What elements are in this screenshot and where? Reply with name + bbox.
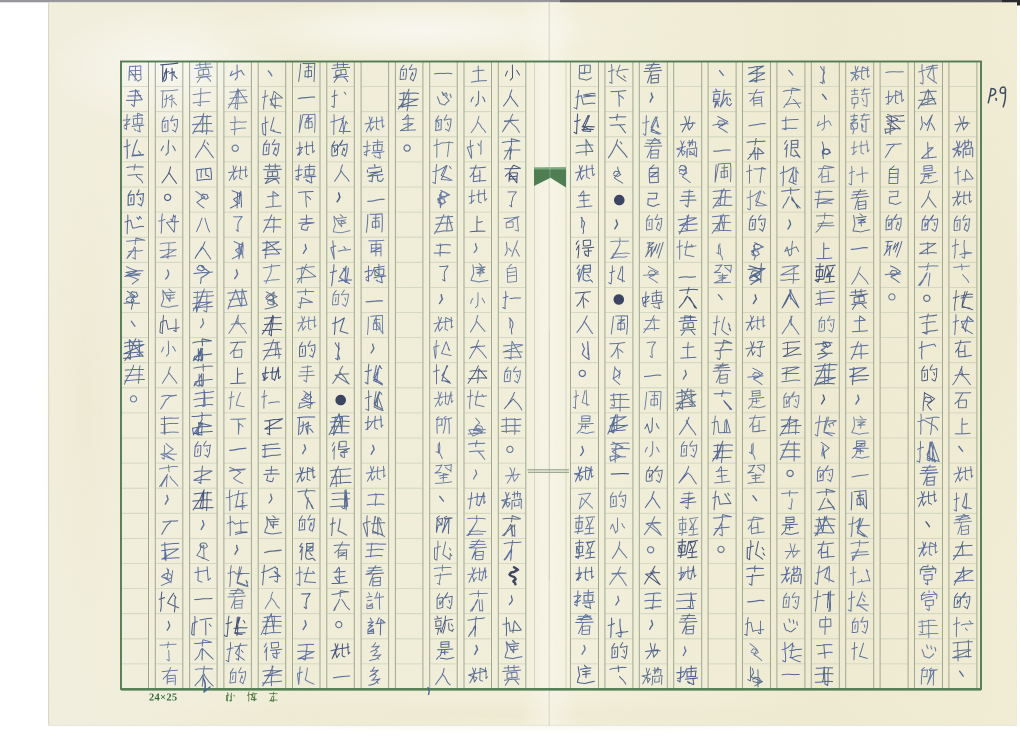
- svg-text:24×25: 24×25: [149, 693, 177, 704]
